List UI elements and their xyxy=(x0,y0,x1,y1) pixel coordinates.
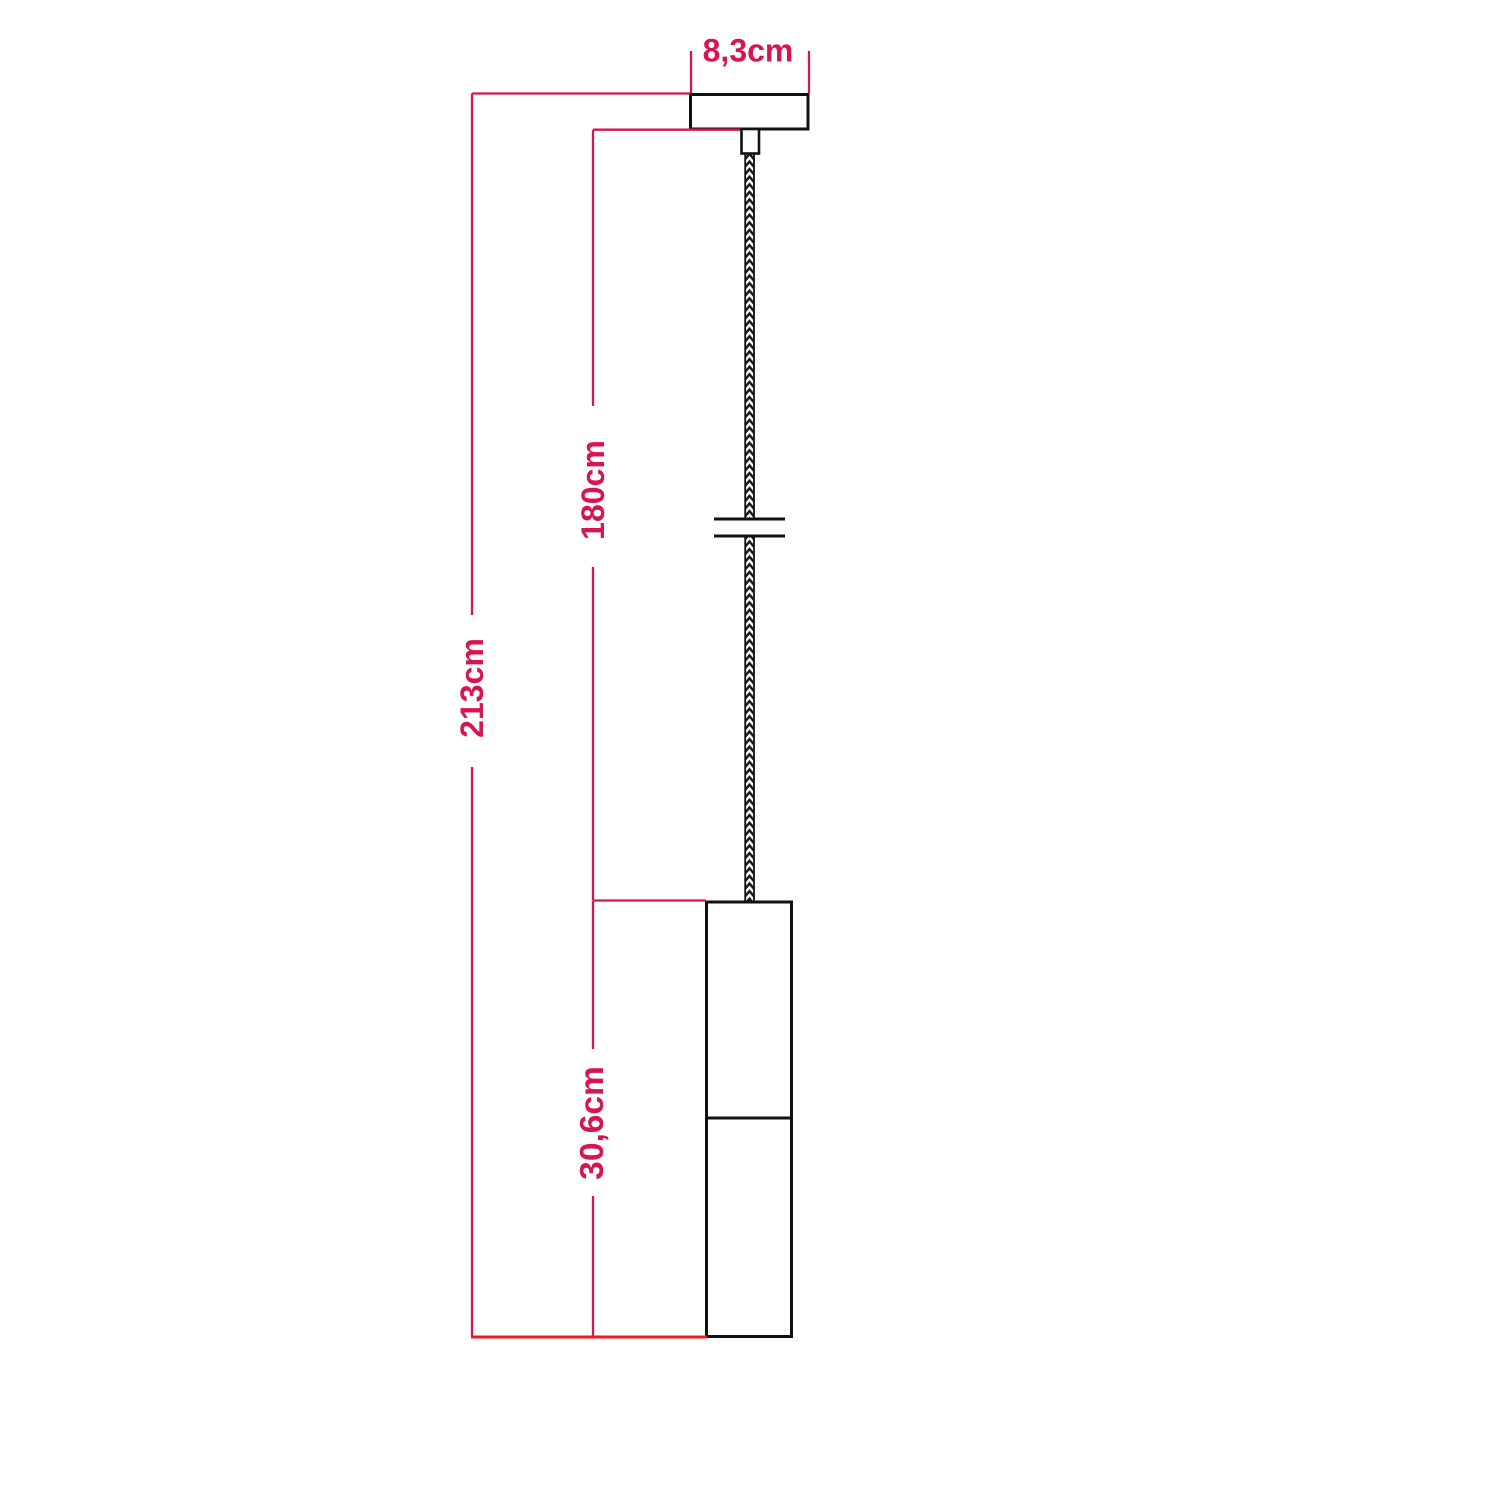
svg-text:8,3cm: 8,3cm xyxy=(703,33,794,69)
svg-text:180cm: 180cm xyxy=(575,440,611,540)
svg-text:213cm: 213cm xyxy=(454,638,490,738)
svg-text:30,6cm: 30,6cm xyxy=(574,1066,611,1180)
